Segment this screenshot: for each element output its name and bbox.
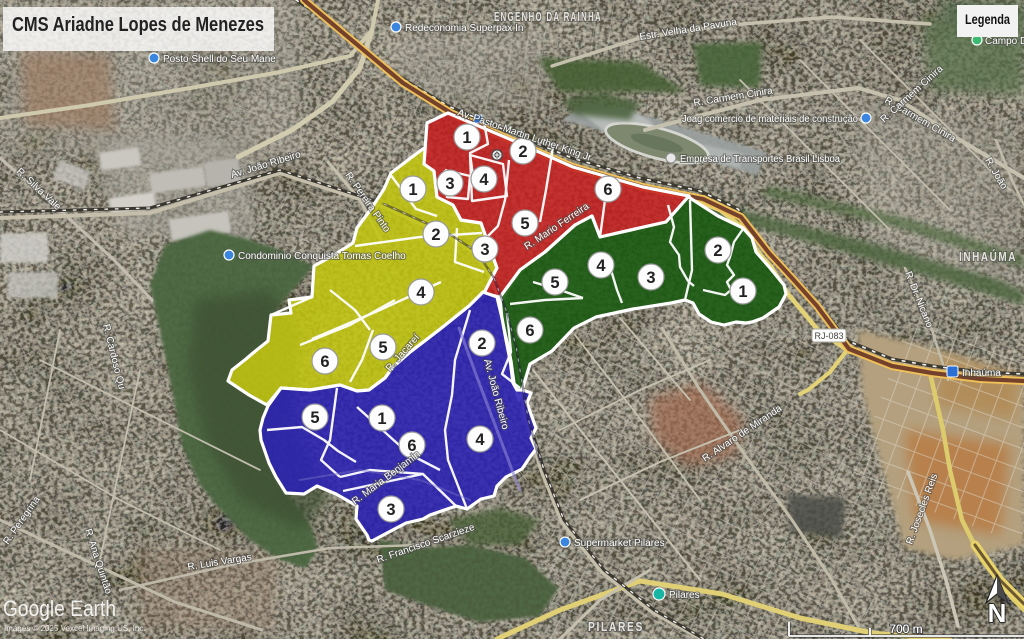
svg-text:Campo Do: Campo Do — [985, 36, 1024, 47]
svg-text:3: 3 — [386, 501, 395, 519]
svg-text:1: 1 — [462, 129, 471, 147]
svg-text:Supermarket Pilares: Supermarket Pilares — [574, 538, 665, 549]
svg-text:2: 2 — [477, 335, 486, 353]
svg-text:RJ-083: RJ-083 — [814, 331, 843, 341]
svg-text:4: 4 — [475, 431, 485, 449]
svg-text:Empresa de Transportes Brasil: Empresa de Transportes Brasil Lisboa — [680, 154, 840, 165]
svg-text:4: 4 — [479, 171, 489, 189]
svg-text:6: 6 — [603, 181, 612, 199]
svg-text:6: 6 — [320, 353, 329, 371]
svg-text:PILARES: PILARES — [588, 620, 644, 634]
svg-text:Legenda: Legenda — [965, 12, 1010, 27]
svg-text:Joag comercio de materiais de: Joag comercio de materiais de construção — [682, 114, 858, 125]
svg-text:700 m: 700 m — [889, 622, 922, 636]
svg-text:Redeconomia Superpax In: Redeconomia Superpax In — [405, 23, 523, 34]
svg-text:CMS Ariadne Lopes de Menezes: CMS Ariadne Lopes de Menezes — [12, 14, 264, 36]
svg-text:4: 4 — [596, 257, 606, 275]
svg-text:Condominio Conquista Tomas Coe: Condominio Conquista Tomas Coelho — [238, 251, 406, 262]
svg-text:INHAÚMA: INHAÚMA — [959, 249, 1017, 264]
svg-text:5: 5 — [550, 274, 559, 292]
svg-text:3: 3 — [480, 241, 489, 259]
svg-text:4: 4 — [416, 284, 426, 302]
svg-text:2: 2 — [518, 143, 527, 161]
svg-text:N: N — [988, 598, 1007, 628]
svg-text:6: 6 — [525, 322, 534, 340]
svg-text:Inhaúma: Inhaúma — [962, 368, 1001, 379]
svg-text:5: 5 — [520, 215, 529, 233]
svg-text:Pilares: Pilares — [669, 590, 700, 601]
svg-text:2: 2 — [713, 242, 722, 260]
svg-text:2: 2 — [431, 226, 440, 244]
svg-text:ENGENHO DA RAINHA: ENGENHO DA RAINHA — [494, 10, 602, 24]
svg-text:Google Earth: Google Earth — [3, 596, 116, 621]
svg-text:1: 1 — [408, 181, 417, 199]
svg-text:5: 5 — [378, 339, 387, 357]
svg-text:1: 1 — [738, 283, 747, 301]
svg-text:Images © 2025 Vexcel Imaging U: Images © 2025 Vexcel Imaging US, Inc. — [4, 624, 146, 633]
svg-text:3: 3 — [646, 269, 655, 287]
svg-text:1: 1 — [377, 410, 386, 428]
svg-text:3: 3 — [445, 175, 454, 193]
svg-text:Posto Shell do Seu Mane: Posto Shell do Seu Mane — [163, 54, 276, 65]
svg-text:5: 5 — [310, 409, 319, 427]
